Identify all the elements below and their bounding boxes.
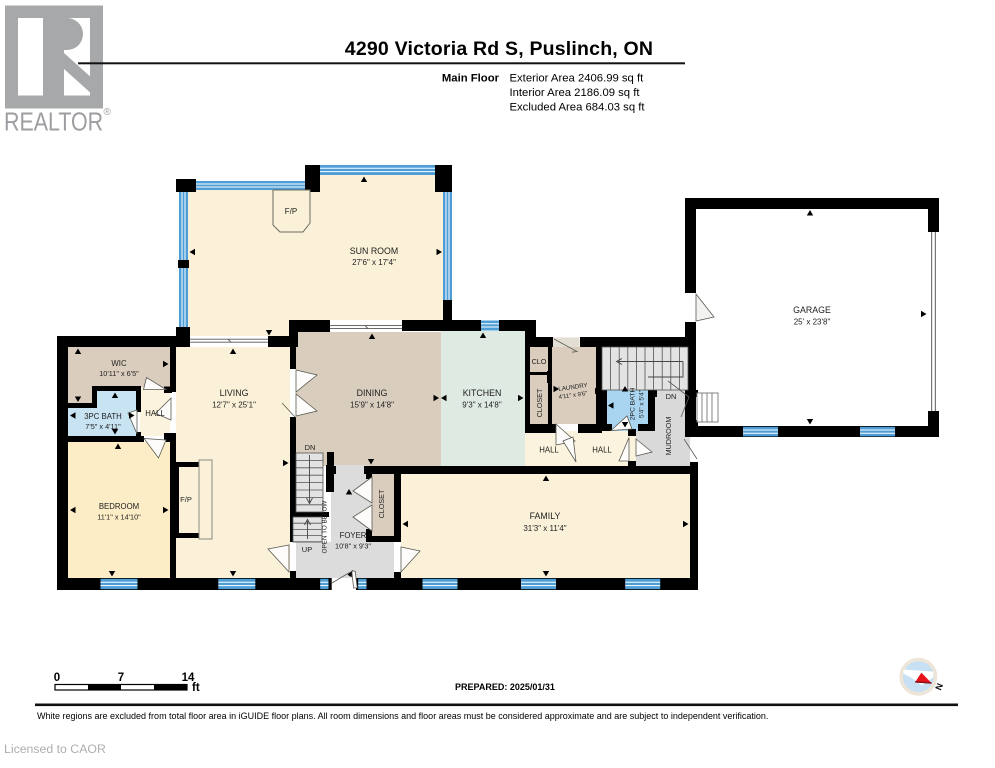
svg-text:10'8" x 9'3": 10'8" x 9'3" bbox=[335, 542, 371, 551]
svg-text:FAMILY: FAMILY bbox=[530, 511, 561, 521]
svg-text:White regions are excluded fro: White regions are excluded from total fl… bbox=[37, 711, 768, 721]
svg-text:OPEN TO BELOW: OPEN TO BELOW bbox=[322, 501, 329, 554]
svg-text:®: ® bbox=[104, 107, 112, 118]
svg-text:LIVING: LIVING bbox=[220, 388, 249, 398]
svg-text:SUN ROOM: SUN ROOM bbox=[350, 246, 398, 256]
svg-text:DN: DN bbox=[305, 443, 316, 452]
svg-text:12'7" x 25'1": 12'7" x 25'1" bbox=[212, 401, 256, 410]
svg-text:FOYER: FOYER bbox=[340, 531, 367, 540]
svg-text:31'3" x 11'4": 31'3" x 11'4" bbox=[523, 524, 566, 533]
svg-text:HALL: HALL bbox=[539, 446, 559, 455]
svg-text:UP: UP bbox=[302, 545, 312, 554]
svg-text:25' x 23'8": 25' x 23'8" bbox=[794, 318, 831, 327]
svg-text:Licensed to CAOR: Licensed to CAOR bbox=[4, 742, 106, 756]
svg-text:15'9" x 14'8": 15'9" x 14'8" bbox=[350, 401, 394, 410]
svg-text:F/P: F/P bbox=[180, 495, 192, 504]
svg-text:KITCHEN: KITCHEN bbox=[463, 388, 502, 398]
svg-text:BEDROOM: BEDROOM bbox=[99, 502, 139, 511]
svg-text:DINING: DINING bbox=[357, 388, 388, 398]
svg-text:HALL: HALL bbox=[592, 446, 612, 455]
svg-text:Interior Area 2186.09 sq ft: Interior Area 2186.09 sq ft bbox=[510, 87, 641, 99]
svg-text:Exterior Area 2406.99 sq ft: Exterior Area 2406.99 sq ft bbox=[510, 73, 645, 85]
svg-text:Main Floor: Main Floor bbox=[442, 73, 500, 85]
svg-text:REALTOR: REALTOR bbox=[4, 108, 103, 136]
svg-text:0: 0 bbox=[54, 672, 60, 684]
svg-text:9'3" x 14'8": 9'3" x 14'8" bbox=[462, 401, 502, 410]
svg-text:MUDROOM: MUDROOM bbox=[664, 417, 673, 456]
svg-text:Excluded Area 684.03 sq ft: Excluded Area 684.03 sq ft bbox=[510, 102, 646, 114]
svg-text:GARAGE: GARAGE bbox=[793, 305, 831, 315]
svg-text:10'11" x 6'5": 10'11" x 6'5" bbox=[99, 369, 139, 378]
svg-text:7'5" x 4'11": 7'5" x 4'11" bbox=[85, 422, 121, 431]
svg-text:27'6" x 17'4": 27'6" x 17'4" bbox=[352, 258, 396, 267]
svg-text:HALL: HALL bbox=[145, 409, 165, 418]
svg-text:11'1" x 14'10": 11'1" x 14'10" bbox=[97, 513, 141, 522]
svg-text:PREPARED: 2025/01/31: PREPARED: 2025/01/31 bbox=[455, 682, 555, 692]
svg-text:CLOSET: CLOSET bbox=[377, 489, 386, 518]
svg-text:F/P: F/P bbox=[285, 207, 297, 216]
svg-text:CLOSET: CLOSET bbox=[535, 388, 544, 417]
svg-text:N: N bbox=[933, 682, 945, 692]
svg-text:5'4" x 5'4": 5'4" x 5'4" bbox=[639, 390, 646, 418]
svg-text:2PC BATH: 2PC BATH bbox=[630, 388, 637, 421]
svg-text:WIC: WIC bbox=[111, 359, 127, 368]
svg-text:CLO: CLO bbox=[532, 357, 547, 366]
svg-text:3PC BATH: 3PC BATH bbox=[84, 412, 122, 421]
svg-text:7: 7 bbox=[118, 672, 124, 684]
svg-text:DN: DN bbox=[666, 392, 677, 401]
svg-text:ft: ft bbox=[192, 682, 200, 694]
svg-text:4290 Victoria Rd S, Puslinch,: 4290 Victoria Rd S, Puslinch, ON bbox=[345, 38, 653, 60]
